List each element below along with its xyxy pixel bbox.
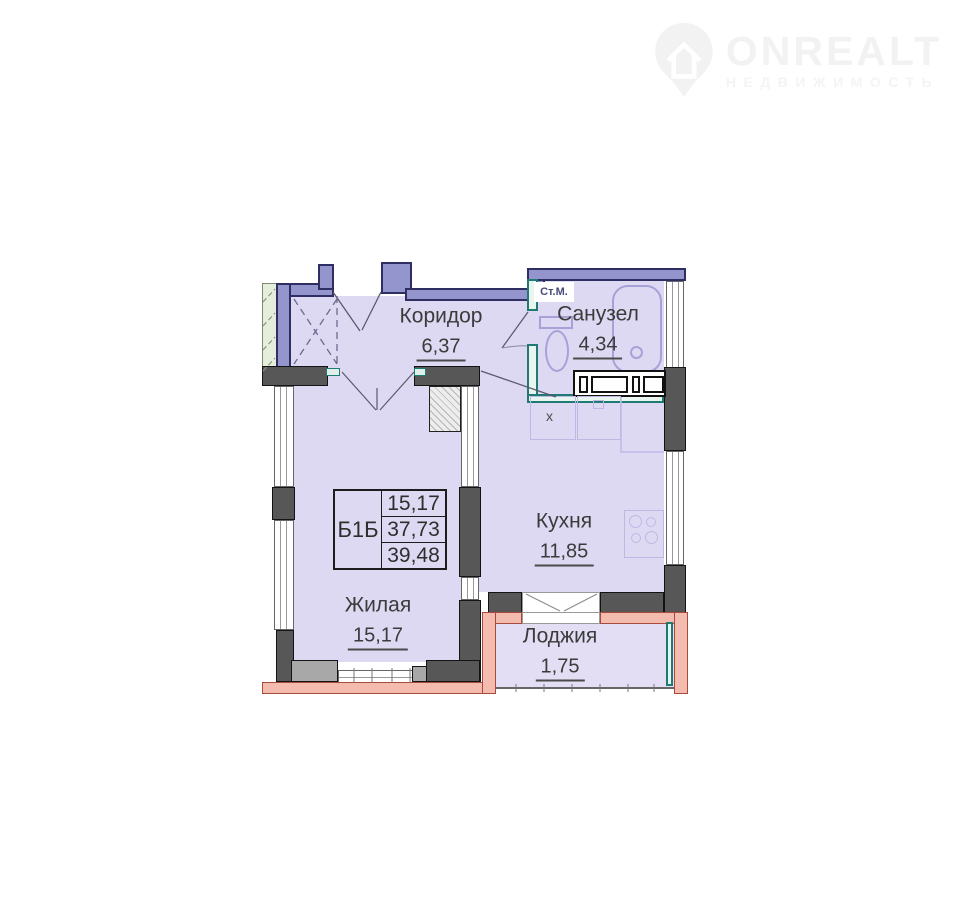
stove-burner <box>646 517 656 527</box>
wall-segment <box>527 268 686 281</box>
opening-mark <box>326 368 340 376</box>
loggia-glazing-side <box>666 622 673 686</box>
unit-area-reduced: 37,73 <box>382 517 445 543</box>
pier <box>664 367 686 451</box>
kitchen-marker: х <box>546 408 553 424</box>
brand-subtitle: НЕДВИЖИМОСТЬ <box>726 74 942 90</box>
brand-name: ONREALT <box>726 31 942 71</box>
room-label-kitchen: Кухня 11,85 <box>535 510 594 567</box>
stove-burner <box>645 531 658 544</box>
balcony-door-opening <box>522 592 600 614</box>
pier <box>600 592 664 614</box>
stove-burner <box>629 515 642 528</box>
wall-segment <box>276 283 291 373</box>
pier <box>291 660 338 682</box>
pier <box>664 565 686 614</box>
room-label-living: Жилая 15,17 <box>345 594 411 651</box>
pier <box>262 366 328 386</box>
pier <box>459 487 481 577</box>
room-label-corridor: Коридор 6,37 <box>400 305 483 362</box>
balcony-slab-edge <box>262 682 490 694</box>
wall-segment <box>405 288 540 301</box>
unit-code: Б1Б <box>335 491 382 568</box>
loggia-wall <box>482 612 496 694</box>
room-label-bathroom: Санузел 4,34 <box>557 303 639 360</box>
unit-table: Б1Б 15,17 37,73 39,48 <box>333 489 447 570</box>
opening-mark <box>414 368 426 376</box>
adjacent-area <box>262 283 277 373</box>
shaft-hatched <box>429 386 461 432</box>
wall-channel <box>461 386 479 487</box>
window <box>274 386 294 487</box>
sink-detail <box>593 400 604 409</box>
window <box>666 281 684 369</box>
wall-channel <box>461 577 479 600</box>
vanity-icon <box>573 370 666 397</box>
kitchen-counter-cell <box>530 396 576 440</box>
window <box>274 520 294 630</box>
loggia-wall <box>674 612 688 694</box>
room-label-loggia: Лоджия 1,75 <box>523 625 597 682</box>
unit-area-total: 39,48 <box>382 543 445 568</box>
loggia-threshold <box>522 612 600 624</box>
unit-area-living: 15,17 <box>382 491 445 517</box>
location-pin-house-icon <box>652 21 716 99</box>
pier <box>272 487 295 520</box>
window <box>666 451 684 565</box>
washing-machine-label: Ст.М. <box>534 282 574 302</box>
pier <box>426 660 480 682</box>
stove-burner <box>631 533 641 543</box>
pier <box>488 592 522 614</box>
wall-segment <box>318 264 334 290</box>
floor-plan-page: ONREALT НЕДВИЖИМОСТЬ <box>0 0 960 910</box>
onrealt-logo: ONREALT НЕДВИЖИМОСТЬ <box>652 18 942 102</box>
